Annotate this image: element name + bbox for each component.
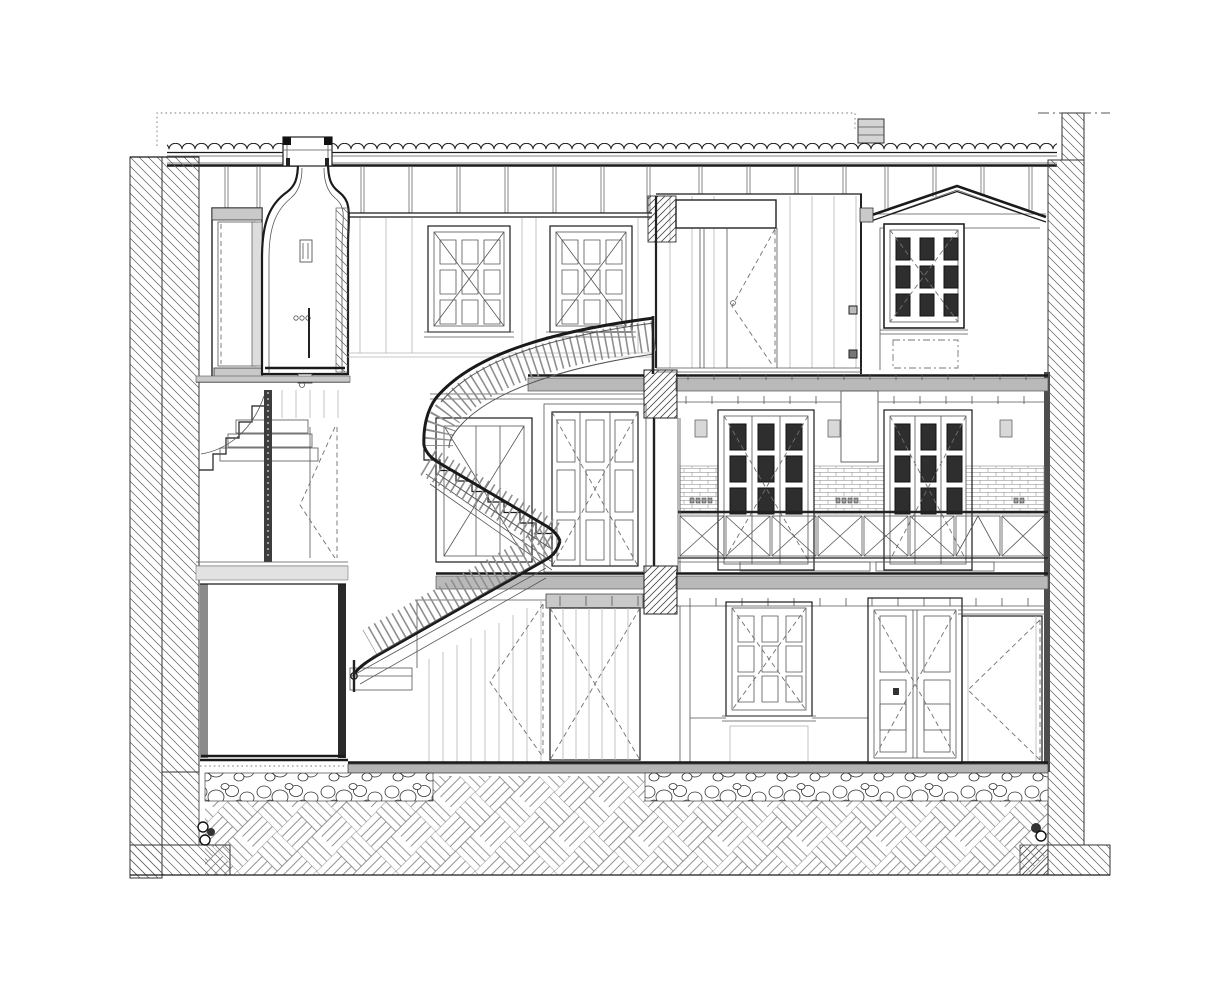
sliding-plank-door xyxy=(958,610,1046,762)
dormer xyxy=(860,186,1046,374)
casement-window-2 xyxy=(546,226,636,337)
gallery-railing xyxy=(678,512,1048,571)
french-door-1 xyxy=(718,410,814,570)
drawing-stage xyxy=(0,0,1226,1000)
gallery xyxy=(678,391,1048,571)
shaft-floor-band xyxy=(196,376,350,382)
tall-double-door xyxy=(868,598,962,764)
service-stair-room xyxy=(196,390,348,580)
second-floor-middle-bay xyxy=(648,194,862,374)
section-drawing xyxy=(0,0,1226,1000)
lightwell-shaft xyxy=(212,208,262,380)
sconce xyxy=(828,420,840,437)
sconce xyxy=(695,420,707,437)
dormer-window xyxy=(880,224,968,334)
sconce xyxy=(1000,420,1012,437)
water-tank xyxy=(200,584,346,766)
bell-vault xyxy=(262,162,349,388)
first-floor-left-bay xyxy=(430,394,646,572)
ground-center xyxy=(350,594,643,762)
casement-window-1 xyxy=(424,226,514,337)
ground-window xyxy=(690,602,868,766)
duct-drop xyxy=(841,391,878,462)
base-and-ground xyxy=(130,760,1110,875)
main-staircase xyxy=(351,316,654,692)
second-floor-left-bay xyxy=(348,213,652,357)
skylight xyxy=(283,137,332,166)
roof-vent xyxy=(858,119,884,143)
swing-door xyxy=(700,228,777,368)
board-x-door xyxy=(546,594,643,760)
